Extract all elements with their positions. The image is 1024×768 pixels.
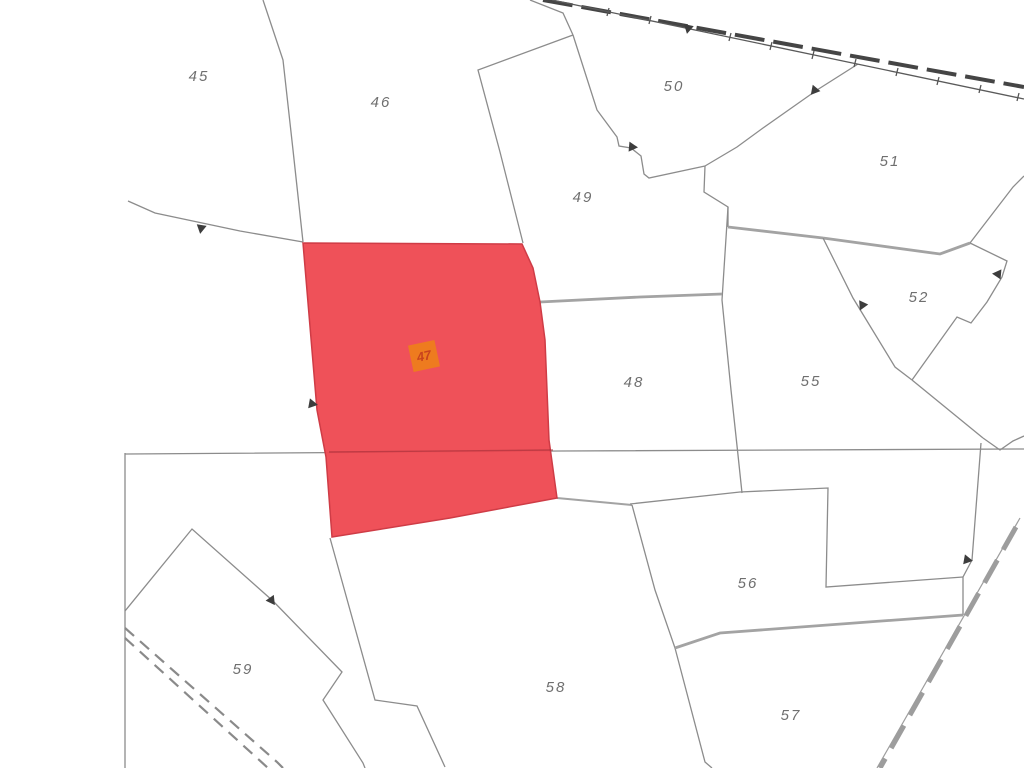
parcel-label-58: 58 — [546, 679, 567, 696]
highlighted-parcel-47[interactable] — [303, 243, 557, 537]
parcel-label-52: 52 — [909, 289, 930, 306]
parcel-label-51: 51 — [880, 153, 901, 170]
parcel-label-50: 50 — [664, 78, 685, 95]
parcel-label-59: 59 — [233, 661, 254, 678]
parcel-label-46: 46 — [371, 94, 392, 111]
parcel-label-55: 55 — [801, 373, 822, 390]
parcel-label-49: 49 — [573, 189, 594, 206]
parcel-label-57: 57 — [781, 707, 802, 724]
parcel-label-45: 45 — [189, 68, 210, 85]
parcel-label-48: 48 — [624, 374, 645, 391]
parcel-label-56: 56 — [738, 575, 759, 592]
cadastral-map-canvas: 45464849505152555657585947 — [0, 0, 1024, 768]
cadastral-map: 45464849505152555657585947 — [0, 0, 1024, 768]
